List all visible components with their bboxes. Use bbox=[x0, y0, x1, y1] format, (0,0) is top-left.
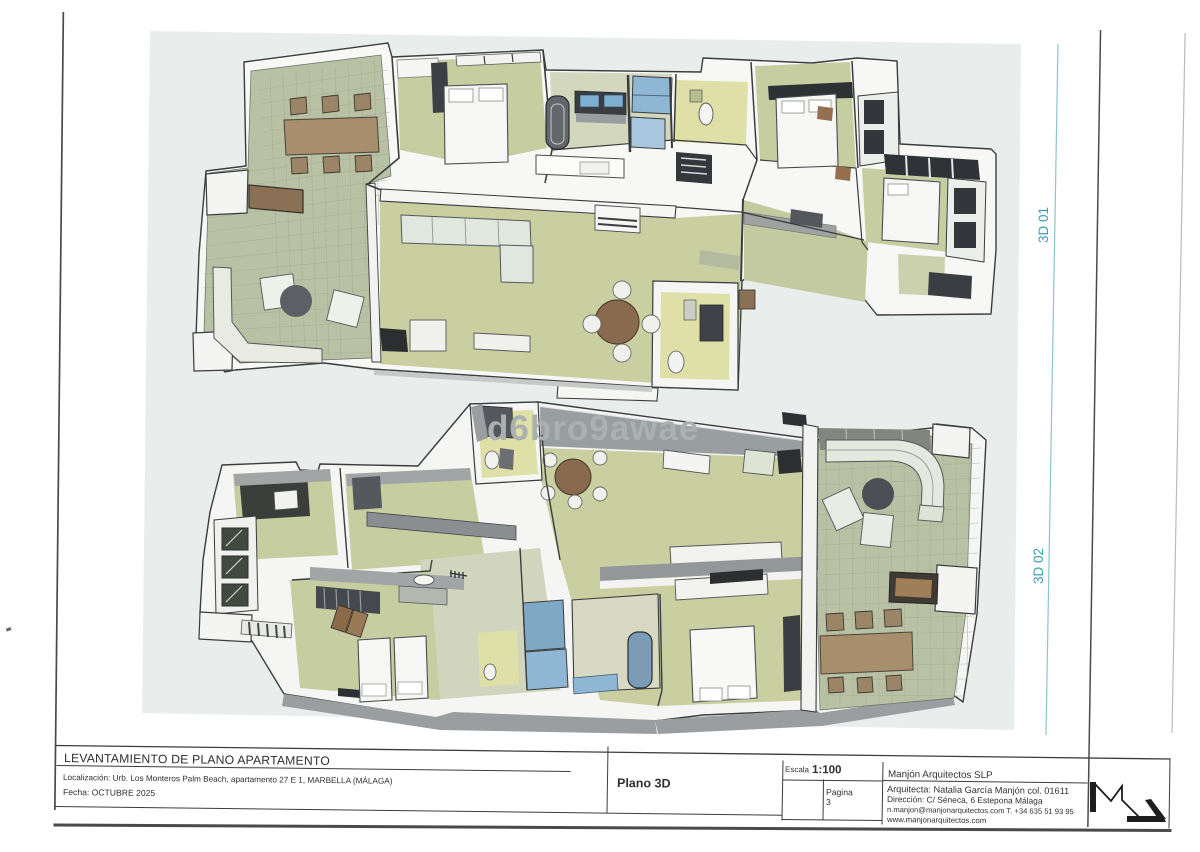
svg-text:www.manjonarquitectos.com: www.manjonarquitectos.com bbox=[886, 815, 986, 825]
svg-text:Dirección: C/ Séneca, 6 Estepo: Dirección: C/ Séneca, 6 Estepona Málaga bbox=[887, 794, 1043, 806]
svg-text:3D 01: 3D 01 bbox=[1036, 207, 1051, 243]
svg-text:Manjón Arquitectos SLP: Manjón Arquitectos SLP bbox=[888, 769, 993, 781]
svg-text:Escala: Escala bbox=[785, 765, 810, 774]
svg-text:3D 02: 3D 02 bbox=[1031, 548, 1046, 584]
svg-text:Plano 3D: Plano 3D bbox=[617, 776, 671, 791]
svg-text:Fecha: OCTUBRE 2025: Fecha: OCTUBRE 2025 bbox=[63, 787, 156, 798]
svg-text:3: 3 bbox=[826, 797, 831, 807]
svg-text:1:100: 1:100 bbox=[812, 764, 842, 776]
svg-text:d6bro9awae: d6bro9awae bbox=[487, 409, 699, 448]
svg-text:Pagina: Pagina bbox=[826, 787, 853, 797]
